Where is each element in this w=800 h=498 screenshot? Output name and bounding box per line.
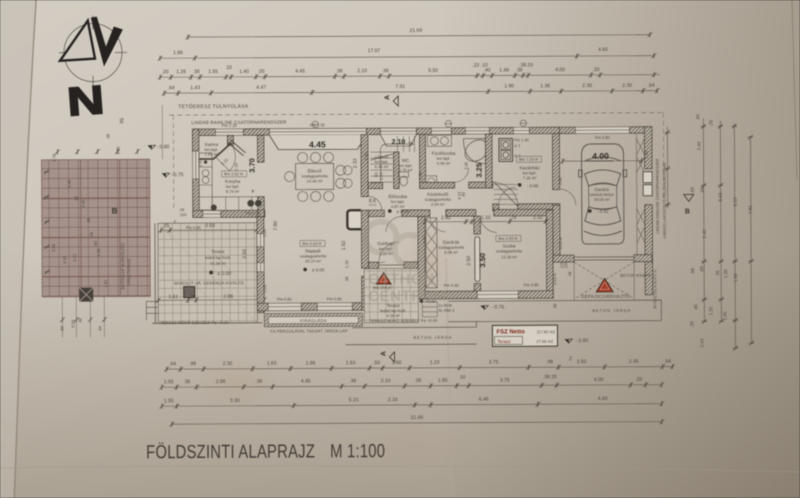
svg-text:Pm 0.85: Pm 0.85 bbox=[277, 297, 293, 302]
svg-text:1.55: 1.55 bbox=[208, 69, 218, 75]
svg-text:2.05: 2.05 bbox=[418, 171, 423, 180]
svg-text:.98: .98 bbox=[546, 359, 553, 365]
svg-text:.38: .38 bbox=[336, 68, 343, 74]
svg-text:7.81: 7.81 bbox=[748, 205, 753, 214]
svg-text:.38: .38 bbox=[344, 276, 349, 282]
svg-text:VIRÁGLÁDA: VIRÁGLÁDA bbox=[300, 318, 327, 323]
svg-text:5.21: 5.21 bbox=[349, 397, 359, 403]
svg-text:fedett lap burk.: fedett lap burk. bbox=[205, 255, 231, 260]
svg-text:20.00 m²: 20.00 m² bbox=[594, 197, 610, 202]
svg-text:7.91: 7.91 bbox=[395, 84, 405, 90]
svg-text:GÉPKOCSIBEHAJTÓ: GÉPKOCSIBEHAJTÓ bbox=[581, 293, 630, 299]
svg-text:.64: .64 bbox=[648, 83, 655, 89]
svg-text:.38: .38 bbox=[183, 379, 190, 385]
svg-text:3.50: 3.50 bbox=[478, 253, 487, 268]
svg-text:6.58: 6.58 bbox=[51, 243, 56, 252]
svg-text:Pm 0.85: Pm 0.85 bbox=[246, 211, 262, 216]
svg-text:- 0.66: - 0.66 bbox=[527, 183, 539, 188]
svg-text:± 0.00: ± 0.00 bbox=[397, 209, 410, 214]
svg-text:1.58: 1.58 bbox=[733, 273, 738, 282]
svg-text:LINDAB RAINLINE CSATORNARENDSZ: LINDAB RAINLINE CSATORNARENDSZER bbox=[656, 158, 660, 233]
svg-text:2.40: 2.40 bbox=[81, 199, 86, 208]
svg-text:GRILLTERASZ: GRILLTERASZ bbox=[126, 258, 131, 286]
svg-text:2.86: 2.86 bbox=[223, 294, 233, 300]
svg-text:BETON JÁRDA: BETON JÁRDA bbox=[592, 308, 631, 313]
svg-text:.80: .80 bbox=[59, 325, 64, 331]
svg-text:3.50: 3.50 bbox=[205, 223, 215, 229]
svg-text:.40: .40 bbox=[484, 68, 491, 74]
svg-text:5.63: 5.63 bbox=[718, 192, 723, 201]
svg-text:7.80: 7.80 bbox=[273, 221, 279, 231]
svg-text:1.00: 1.00 bbox=[558, 177, 563, 186]
svg-text:.20: .20 bbox=[708, 120, 713, 127]
svg-text:1.55: 1.55 bbox=[164, 398, 174, 404]
svg-text:2.78: 2.78 bbox=[51, 153, 56, 162]
svg-text:Z: Z bbox=[569, 356, 572, 362]
svg-text:21.69: 21.69 bbox=[410, 28, 423, 34]
svg-text:1.85: 1.85 bbox=[438, 378, 448, 384]
svg-text:Pm 0.85: Pm 0.85 bbox=[186, 225, 202, 230]
svg-text:.50: .50 bbox=[373, 360, 380, 366]
svg-text:CENTRUM: CENTRUM bbox=[368, 288, 447, 305]
svg-text:1.63: 1.63 bbox=[346, 360, 356, 366]
svg-text:.69: .69 bbox=[690, 187, 695, 194]
svg-text:1.70 m²: 1.70 m² bbox=[399, 167, 413, 172]
svg-text:3.70: 3.70 bbox=[248, 158, 257, 173]
svg-text:6.08 m²: 6.08 m² bbox=[444, 250, 458, 255]
svg-text:1.55: 1.55 bbox=[164, 379, 174, 385]
svg-text:4.60: 4.60 bbox=[598, 396, 608, 402]
svg-text:117.82 m2: 117.82 m2 bbox=[536, 329, 555, 334]
svg-text:.38: .38 bbox=[189, 294, 196, 300]
svg-text:.150: .150 bbox=[179, 212, 188, 217]
svg-text:2.10: 2.10 bbox=[357, 68, 367, 74]
svg-text:B: B bbox=[685, 208, 690, 215]
svg-text:2.43: 2.43 bbox=[699, 338, 704, 347]
svg-text:.38: .38 bbox=[77, 317, 82, 323]
svg-text:3.25 H: 3.25 H bbox=[558, 237, 563, 249]
svg-text:.38: .38 bbox=[414, 378, 421, 384]
svg-text:1.38: 1.38 bbox=[96, 248, 101, 257]
svg-text:Pm 1.45: Pm 1.45 bbox=[514, 137, 530, 142]
svg-text:.20: .20 bbox=[635, 377, 642, 383]
svg-text:Pm 0.85: Pm 0.85 bbox=[524, 282, 540, 287]
svg-text:4.30: 4.30 bbox=[62, 255, 67, 264]
svg-text:FSZ Netto: FSZ Netto bbox=[496, 329, 525, 335]
svg-text:TETŐERESZ TÚLNYÚLÁSA: TETŐERESZ TÚLNYÚLÁSA bbox=[178, 103, 248, 110]
svg-text:1.88: 1.88 bbox=[173, 50, 183, 56]
svg-text:5.50: 5.50 bbox=[428, 68, 438, 74]
svg-text:BETONLAP BURKOLATÚ: BETONLAP BURKOLATÚ bbox=[120, 243, 125, 290]
svg-text:.78: .78 bbox=[509, 215, 516, 221]
svg-text:.20: .20 bbox=[258, 69, 265, 75]
svg-text:4.00: 4.00 bbox=[555, 67, 565, 73]
svg-text:1.20: 1.20 bbox=[379, 172, 384, 181]
svg-text:1.25: 1.25 bbox=[708, 306, 713, 315]
svg-text:1.23: 1.23 bbox=[430, 360, 440, 366]
svg-text:1.20: 1.20 bbox=[723, 269, 728, 278]
svg-text:.98: .98 bbox=[690, 268, 695, 275]
svg-text:0.50: 0.50 bbox=[70, 319, 75, 328]
svg-text:2.20: 2.20 bbox=[234, 162, 239, 171]
svg-text:Bm 2.62 H: Bm 2.62 H bbox=[224, 171, 243, 176]
svg-text:.38: .38 bbox=[349, 378, 356, 384]
svg-text:.64: .64 bbox=[664, 359, 671, 365]
svg-text:.20: .20 bbox=[593, 67, 600, 73]
svg-text:4.45: 4.45 bbox=[309, 139, 326, 149]
svg-text:4.00: 4.00 bbox=[592, 151, 609, 161]
svg-text:2.94 m²: 2.94 m² bbox=[431, 202, 445, 207]
svg-text:.38: .38 bbox=[105, 133, 110, 139]
svg-text:Bm 7.23 H: Bm 7.23 H bbox=[519, 157, 538, 162]
svg-text:2.50: 2.50 bbox=[466, 256, 472, 266]
svg-text:1.63: 1.63 bbox=[267, 361, 277, 367]
svg-text:TERASZ MŰKŐ SZEGÉLY Pa +0.00: TERASZ MŰKŐ SZEGÉLY Pa +0.00 bbox=[369, 318, 438, 323]
svg-text:2.10: 2.10 bbox=[388, 397, 398, 403]
svg-text:N: N bbox=[66, 78, 106, 125]
svg-text:.38: .38 bbox=[567, 271, 572, 277]
svg-text:6.46: 6.46 bbox=[479, 397, 489, 403]
svg-text:± 0.00: ± 0.00 bbox=[312, 267, 325, 272]
svg-text:Pm 0.85: Pm 0.85 bbox=[595, 135, 611, 140]
svg-text:4.47: 4.47 bbox=[256, 85, 266, 91]
svg-text:1.90: 1.90 bbox=[504, 83, 514, 89]
svg-text:± 0.00: ± 0.00 bbox=[217, 271, 231, 277]
svg-text:2.30: 2.30 bbox=[622, 83, 632, 89]
svg-text:1.00: 1.00 bbox=[643, 150, 648, 159]
svg-text:.150: .150 bbox=[563, 261, 568, 270]
svg-text:Pm 1.35: Pm 1.35 bbox=[222, 123, 238, 128]
svg-text:2.35: 2.35 bbox=[372, 198, 377, 207]
svg-text:.20: .20 bbox=[689, 321, 694, 328]
svg-text:1.10: 1.10 bbox=[481, 215, 491, 221]
svg-text:20.10 m²: 20.10 m² bbox=[305, 258, 321, 263]
svg-text:1.52: 1.52 bbox=[341, 240, 347, 250]
svg-text:- 0.75: - 0.75 bbox=[171, 172, 184, 178]
svg-text:Terasz: Terasz bbox=[497, 339, 511, 344]
svg-text:1.92: 1.92 bbox=[103, 279, 108, 288]
svg-text:2.93: 2.93 bbox=[242, 249, 248, 259]
svg-text:17.07: 17.07 bbox=[368, 48, 381, 54]
svg-text:.38.20: .38.20 bbox=[519, 62, 533, 68]
svg-text:2.86: 2.86 bbox=[216, 379, 226, 385]
svg-text:BETON JÁRDA: BETON JÁRDA bbox=[413, 335, 452, 340]
svg-text:10: 10 bbox=[226, 65, 232, 71]
svg-text:.38.20: .38.20 bbox=[543, 374, 557, 380]
svg-text:- 0.80: - 0.80 bbox=[156, 144, 169, 150]
svg-text:FA PERGOLÁVAL TAKART JÁRDA LAP: FA PERGOLÁVAL TAKART JÁRDA LAP bbox=[270, 328, 347, 333]
svg-text:1.32: 1.32 bbox=[533, 215, 543, 221]
svg-text:Terasz: Terasz bbox=[211, 249, 225, 254]
svg-text:.58: .58 bbox=[89, 231, 94, 237]
svg-text:.38: .38 bbox=[255, 379, 262, 385]
svg-text:FÖLDSZINTI ALAPRAJZ M 1:100: FÖLDSZINTI ALAPRAJZ M 1:100 bbox=[146, 440, 385, 462]
svg-text:.90: .90 bbox=[461, 191, 466, 197]
svg-text:GARÁZS LAPOSTETŐ FELÜLVILÁGÍTÓ: GARÁZS LAPOSTETŐ FELÜLVILÁGÍTÓVAL bbox=[662, 162, 667, 238]
svg-text:3.72: 3.72 bbox=[72, 253, 77, 262]
svg-text:21.28 m²: 21.28 m² bbox=[210, 261, 226, 266]
svg-text:4.45: 4.45 bbox=[301, 378, 311, 384]
svg-text:B: B bbox=[112, 206, 118, 215]
svg-text:1.28: 1.28 bbox=[176, 69, 186, 75]
svg-text:1.55: 1.55 bbox=[722, 311, 727, 320]
svg-text:2.35: 2.35 bbox=[363, 152, 368, 161]
svg-text:- 0.80: - 0.80 bbox=[575, 338, 588, 344]
svg-text:27.66 m2: 27.66 m2 bbox=[536, 339, 553, 344]
svg-text:1.40: 1.40 bbox=[239, 69, 249, 75]
svg-text:.84: .84 bbox=[97, 325, 102, 331]
svg-text:1.00: 1.00 bbox=[422, 235, 427, 244]
svg-text:3.30: 3.30 bbox=[230, 398, 240, 404]
svg-text:3.75: 3.75 bbox=[500, 377, 510, 383]
svg-text:1.50: 1.50 bbox=[115, 146, 120, 155]
svg-text:.38: .38 bbox=[382, 68, 389, 74]
svg-text:8.79 m²: 8.79 m² bbox=[226, 189, 240, 194]
svg-text:- 0.42: - 0.42 bbox=[597, 209, 609, 214]
svg-text:BETON RÁMPA: BETON RÁMPA bbox=[620, 273, 651, 278]
svg-text:14.46 m²: 14.46 m² bbox=[307, 178, 323, 183]
svg-text:szalagparketta: szalagparketta bbox=[496, 248, 523, 253]
svg-text:2.10: 2.10 bbox=[381, 378, 391, 384]
svg-text:4.00: 4.00 bbox=[594, 377, 604, 383]
svg-text:1.50: 1.50 bbox=[262, 284, 267, 293]
svg-text:.98: .98 bbox=[86, 217, 91, 223]
svg-text:.69: .69 bbox=[700, 187, 705, 194]
svg-text:95: 95 bbox=[119, 118, 125, 124]
svg-text:K T: K T bbox=[514, 143, 521, 148]
svg-text:3.33 H: 3.33 H bbox=[552, 273, 557, 285]
svg-text:.84: .84 bbox=[695, 114, 700, 121]
svg-text:4L-08A 3: 4L-08A 3 bbox=[438, 308, 455, 313]
svg-text:.64: .64 bbox=[169, 361, 176, 367]
svg-text:1.95: 1.95 bbox=[306, 360, 316, 366]
svg-text:.60: .60 bbox=[699, 266, 704, 273]
svg-text:10: 10 bbox=[460, 375, 466, 381]
svg-text:21.69: 21.69 bbox=[411, 415, 424, 421]
svg-text:.64: .64 bbox=[168, 85, 175, 91]
svg-text:4.06 m²: 4.06 m² bbox=[437, 161, 451, 166]
svg-text:Bm 2.63 H: Bm 2.63 H bbox=[303, 241, 322, 246]
svg-text:1.20: 1.20 bbox=[344, 260, 349, 269]
svg-text:.98: .98 bbox=[552, 303, 557, 309]
svg-text:.25: .25 bbox=[162, 223, 169, 229]
svg-text:A: A bbox=[384, 95, 391, 100]
svg-text:2.50: 2.50 bbox=[577, 359, 587, 365]
svg-text:A: A bbox=[381, 351, 388, 356]
svg-text:.10: .10 bbox=[74, 195, 79, 201]
svg-text:4.48: 4.48 bbox=[67, 179, 72, 188]
svg-text:1.48: 1.48 bbox=[499, 67, 509, 73]
svg-text:6.46 m²: 6.46 m² bbox=[375, 164, 389, 169]
svg-text:7.16 m²: 7.16 m² bbox=[523, 175, 537, 180]
svg-text:- 0.75: - 0.75 bbox=[491, 304, 504, 310]
svg-text:2.30: 2.30 bbox=[629, 359, 639, 365]
svg-text:Bm 2.63 H: Bm 2.63 H bbox=[498, 236, 517, 241]
svg-text:.38: .38 bbox=[193, 69, 200, 75]
svg-text:1.61: 1.61 bbox=[168, 294, 178, 300]
svg-text:2.05: 2.05 bbox=[464, 161, 469, 170]
svg-text:2.30: 2.30 bbox=[582, 83, 592, 89]
svg-text:3.25: 3.25 bbox=[475, 163, 484, 178]
svg-text:INYESZTELA SLICC D.: INYESZTELA SLICC D. bbox=[653, 269, 657, 309]
svg-text:3.75: 3.75 bbox=[489, 359, 499, 365]
svg-text:Pm 1.35: Pm 1.35 bbox=[310, 122, 326, 127]
svg-text:1.43: 1.43 bbox=[190, 85, 200, 91]
svg-text:2.43: 2.43 bbox=[702, 229, 707, 238]
svg-text:1.00: 1.00 bbox=[262, 228, 267, 237]
svg-text:MONOLIT VB. GERENDA KIVÁLTÓ: MONOLIT VB. GERENDA KIVÁLTÓ bbox=[174, 280, 244, 285]
svg-text:TERASZ MŰKŐ SZEGÉLY Pa +0.20: TERASZ MŰKŐ SZEGÉLY Pa +0.20 bbox=[160, 320, 229, 325]
svg-text:2.33: 2.33 bbox=[353, 158, 359, 168]
svg-text:13.18 m²: 13.18 m² bbox=[501, 254, 517, 259]
svg-text:.80: .80 bbox=[93, 240, 98, 246]
svg-text:OTTHON: OTTHON bbox=[368, 271, 434, 288]
svg-text:2.32: 2.32 bbox=[223, 361, 233, 367]
svg-text:.98: .98 bbox=[189, 361, 196, 367]
svg-text:2.43: 2.43 bbox=[696, 141, 701, 150]
svg-text:.95: .95 bbox=[693, 304, 698, 311]
svg-text:.20: .20 bbox=[162, 69, 169, 75]
svg-text:4.60: 4.60 bbox=[598, 47, 608, 53]
svg-text:6.23: 6.23 bbox=[733, 197, 738, 206]
svg-text:2.40: 2.40 bbox=[441, 215, 451, 221]
svg-text:LINDAB RAINLINE CSATORNARENDSZ: LINDAB RAINLINE CSATORNARENDSZER bbox=[191, 120, 287, 126]
svg-text:4.45: 4.45 bbox=[295, 68, 305, 74]
svg-text:1.36: 1.36 bbox=[540, 83, 550, 89]
svg-text:.35: .35 bbox=[715, 270, 720, 277]
svg-text:1.50: 1.50 bbox=[198, 158, 203, 167]
svg-text:Pm 0.85: Pm 0.85 bbox=[327, 296, 343, 301]
